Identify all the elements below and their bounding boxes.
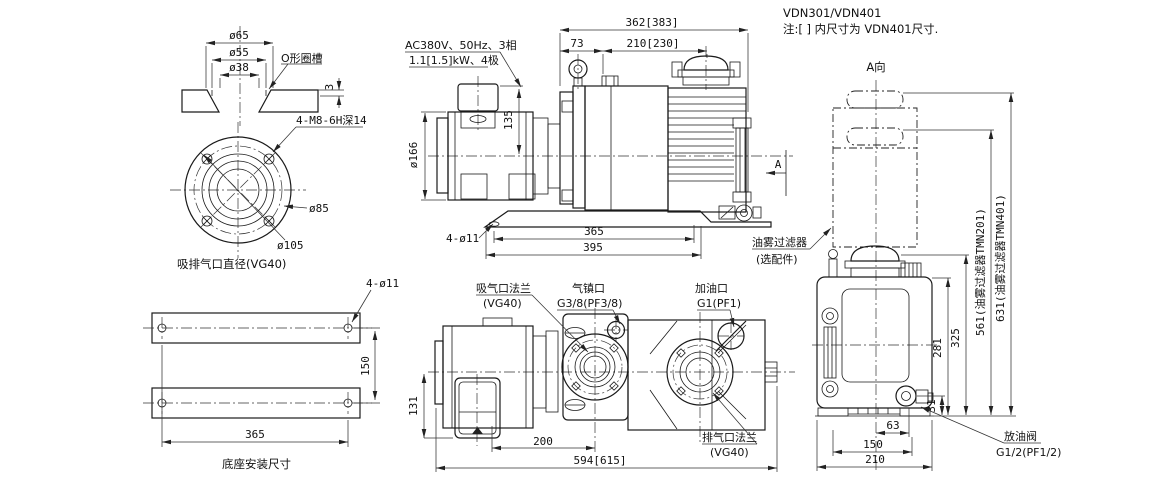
filter-label-line2: (选配件) <box>756 253 798 266</box>
oil-sight-glass-aview <box>822 308 838 397</box>
view-a-arrow: A <box>766 150 786 196</box>
dim-d65: ø65 <box>229 29 249 42</box>
oil-case-ribs <box>668 88 746 212</box>
base-hole-label: 4-ø11 <box>366 277 399 290</box>
plan-view: 吸气口法兰 (VG40) 气镇口 G3/8(PF3/8) 加油口 G1(PF1)… <box>407 281 795 472</box>
dim-631: 631(油雾过滤器TMN401) <box>993 194 1007 322</box>
base-hole-label-side: 4-ø11 <box>446 232 479 245</box>
exhaust-label-line2: (VG40) <box>710 446 749 459</box>
motor-spec-line2: 1.1[1.5]kW、4极 <box>409 53 499 67</box>
dim-135: 135 <box>502 110 515 130</box>
dim-base-365: 365 <box>245 428 265 441</box>
dim-131: 131 <box>407 396 420 416</box>
base-caption: 底座安装尺寸 <box>222 457 291 471</box>
dim-281: 281 <box>931 338 944 358</box>
dim-63: 63 <box>886 419 899 432</box>
exhaust-label-line1: 排气口法兰 <box>702 430 757 444</box>
base-feet <box>815 408 934 416</box>
oil-fill-label-line2: G1(PF1) <box>697 297 741 310</box>
dim-73: 73 <box>570 37 583 50</box>
filter-label-line1: 油雾过滤器 <box>752 235 807 249</box>
oring-groove-label: O形圈槽 <box>281 52 323 65</box>
title-block: VDN301/VDN401 注:[ ] 内尺寸为 VDN401尺寸. <box>783 6 938 36</box>
junction-box-plan <box>455 378 500 438</box>
dim-total-length: 362[383] <box>626 16 679 29</box>
dim-395: 395 <box>583 241 603 254</box>
suction-label-line2: (VG40) <box>483 297 522 310</box>
model-title: VDN301/VDN401 <box>783 6 881 20</box>
oil-mist-filter-phantom <box>833 91 917 247</box>
dim-d55: ø55 <box>229 46 249 59</box>
exhaust-flange-aview <box>829 246 922 277</box>
motor-spec-line1: AC380V、50Hz、3相 <box>405 39 517 52</box>
dim-365: 365 <box>584 225 604 238</box>
dim-d166: ø166 <box>407 142 420 169</box>
dim-200: 200 <box>533 435 553 448</box>
dim-d85: ø85 <box>309 202 329 215</box>
flange-face-view: 4-M8-6H深14 ø85 ø105 吸排气口直径(VG40) <box>170 114 367 271</box>
flange-caption: 吸排气口直径(VG40) <box>177 257 286 271</box>
suction-label-line1: 吸气口法兰 <box>476 281 531 295</box>
a-direction-view: A向 281 325 561(油雾过滤器 <box>812 60 1061 471</box>
dim-325: 325 <box>949 328 962 348</box>
a-view-title: A向 <box>866 60 885 74</box>
dim-base-150: 150 <box>359 356 372 376</box>
engineering-drawing: VDN301/VDN401 注:[ ] 内尺寸为 VDN401尺寸. ø65 ø… <box>0 0 1160 480</box>
drain-label-line1: 放油阀 <box>1004 429 1037 443</box>
drawing-note: 注:[ ] 内尺寸为 VDN401尺寸. <box>783 22 938 36</box>
dim-150: 150 <box>863 438 883 451</box>
side-elevation-view: 362[383] 73 210[230] AC380V、50Hz、3相 1.1[… <box>405 16 831 266</box>
oil-fill-label-line1: 加油口 <box>695 281 728 295</box>
drain-valve-side <box>719 205 761 221</box>
port-detail-view: ø65 ø55 ø38 3 O形圈槽 <box>182 26 344 126</box>
drain-label-line2: G1/2(PF1/2) <box>996 446 1061 459</box>
base-mounting-view: 4-ø11 150 365 底座安装尺寸 <box>143 277 399 471</box>
dim-594: 594[615] <box>574 454 627 467</box>
dim-210: 210 <box>865 453 885 466</box>
bolt-pattern-label: 4-M8-6H深14 <box>296 114 367 127</box>
ballast-label-line2: G3/8(PF3/8) <box>557 297 622 310</box>
dim-561: 561(油雾过滤器TMN201) <box>973 208 987 336</box>
dim-groove-depth: 3 <box>323 84 336 91</box>
dim-d105: ø105 <box>277 239 304 252</box>
oil-sight-glass-side <box>733 118 751 202</box>
view-a-letter: A <box>775 158 782 171</box>
dim-d38: ø38 <box>229 61 249 74</box>
ballast-label-line1: 气镇口 <box>572 281 605 295</box>
dim-210: 210[230] <box>627 37 680 50</box>
dim-31: 31 <box>925 399 938 412</box>
